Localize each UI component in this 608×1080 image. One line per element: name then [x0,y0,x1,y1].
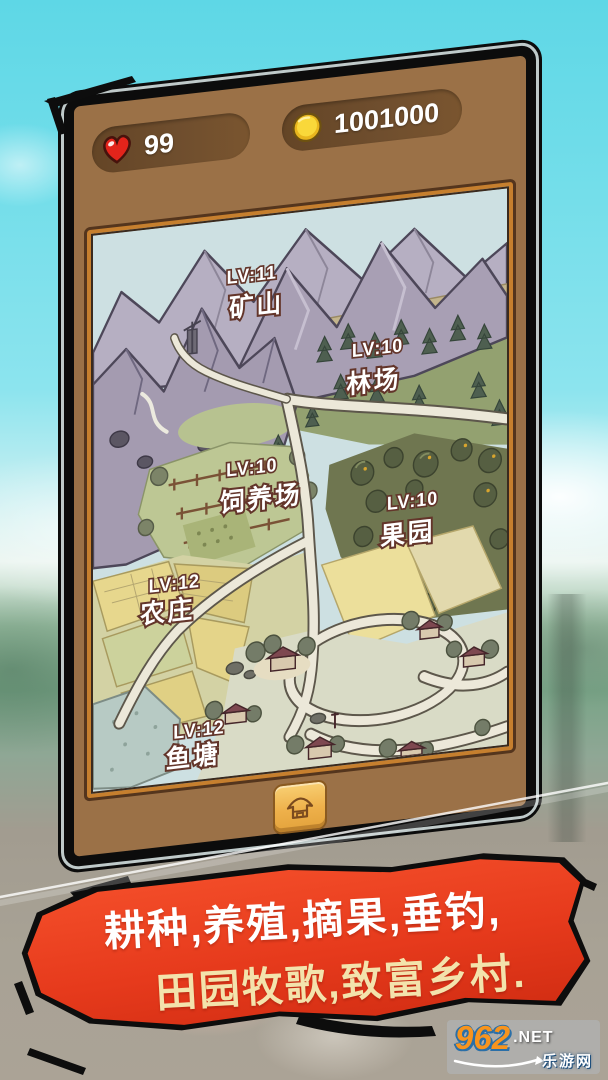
watermark-site-number: 962 [455,1021,510,1055]
map-art: LV:11 矿山 LV:10 林场 LV:10 饲养场 LV:10 果园 LV:… [93,189,507,792]
screenshot-root: { "hud": { "health": "99", "coins": "100… [0,0,608,1080]
watermark-swoosh-icon [453,1056,545,1071]
watermark-site-name: 乐游网 [542,1050,593,1071]
map-frame: LV:11 矿山 LV:10 林场 LV:10 饲养场 LV:10 果园 LV:… [84,179,516,802]
health-counter: 99 [92,111,250,175]
svg-text:矿山: 矿山 [229,288,284,324]
svg-text:鱼塘: 鱼塘 [166,739,221,775]
world-map[interactable]: LV:11 矿山 LV:10 林场 LV:10 饲养场 LV:10 果园 LV:… [91,186,509,794]
heart-icon [100,131,134,167]
coin-counter: 1001000 [282,87,462,154]
promo-banner: 耕种,养殖,摘果,垂钓, 田园牧歌,致富乡村. [12,844,597,1048]
game-phone-screen: 99 1001000 [64,44,536,868]
watermark-domain: .NET [513,1029,553,1047]
home-button[interactable] [273,779,327,835]
map-location-farmstead[interactable]: LV:12 农庄 [139,570,200,630]
hut-icon [285,791,315,822]
coin-value: 1001000 [334,97,439,140]
health-value: 99 [144,127,174,161]
coin-icon [290,109,324,145]
map-location-fishpond[interactable]: LV:12 鱼塘 [166,716,225,775]
site-watermark: 962 .NET 乐游网 [447,1020,600,1074]
